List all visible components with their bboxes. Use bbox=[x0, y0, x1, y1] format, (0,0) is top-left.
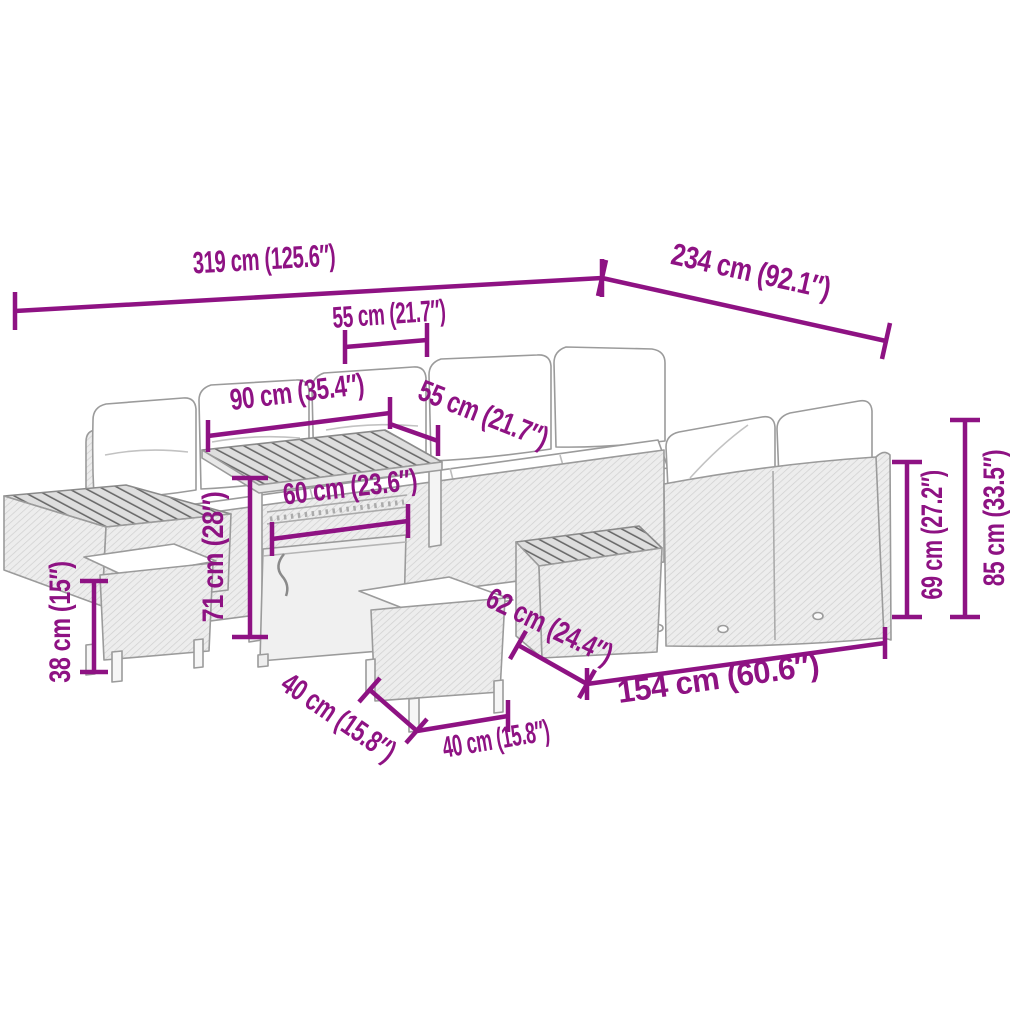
corner-back-cushion bbox=[554, 347, 665, 447]
rivet-dot bbox=[718, 626, 728, 633]
stool-leg bbox=[112, 651, 122, 682]
dimension-label-backrest-height: 69 cm (27.2″) bbox=[918, 470, 948, 599]
sofa-set-sketch-canvas bbox=[0, 0, 1024, 1024]
stool-leg bbox=[194, 639, 203, 668]
rivet-dot bbox=[813, 613, 823, 620]
table-leg bbox=[429, 464, 441, 547]
stool-leg bbox=[494, 680, 503, 713]
back-cushion bbox=[93, 398, 196, 498]
dimension-label-table-height: 71 cm (28″) bbox=[199, 492, 229, 623]
dimension-label-total-height: 85 cm (33.5″) bbox=[980, 450, 1010, 587]
dimension-label-total-width: 319 cm (125.6″) bbox=[192, 240, 336, 279]
dimension-label-stool-height: 38 cm (15″) bbox=[46, 561, 76, 682]
dimension-diagram: 319 cm (125.6″) 234 cm (92.1″) 55 cm (21… bbox=[0, 0, 1024, 1024]
right-sofa-section bbox=[653, 401, 891, 647]
dimension-line-total-height bbox=[950, 420, 980, 617]
